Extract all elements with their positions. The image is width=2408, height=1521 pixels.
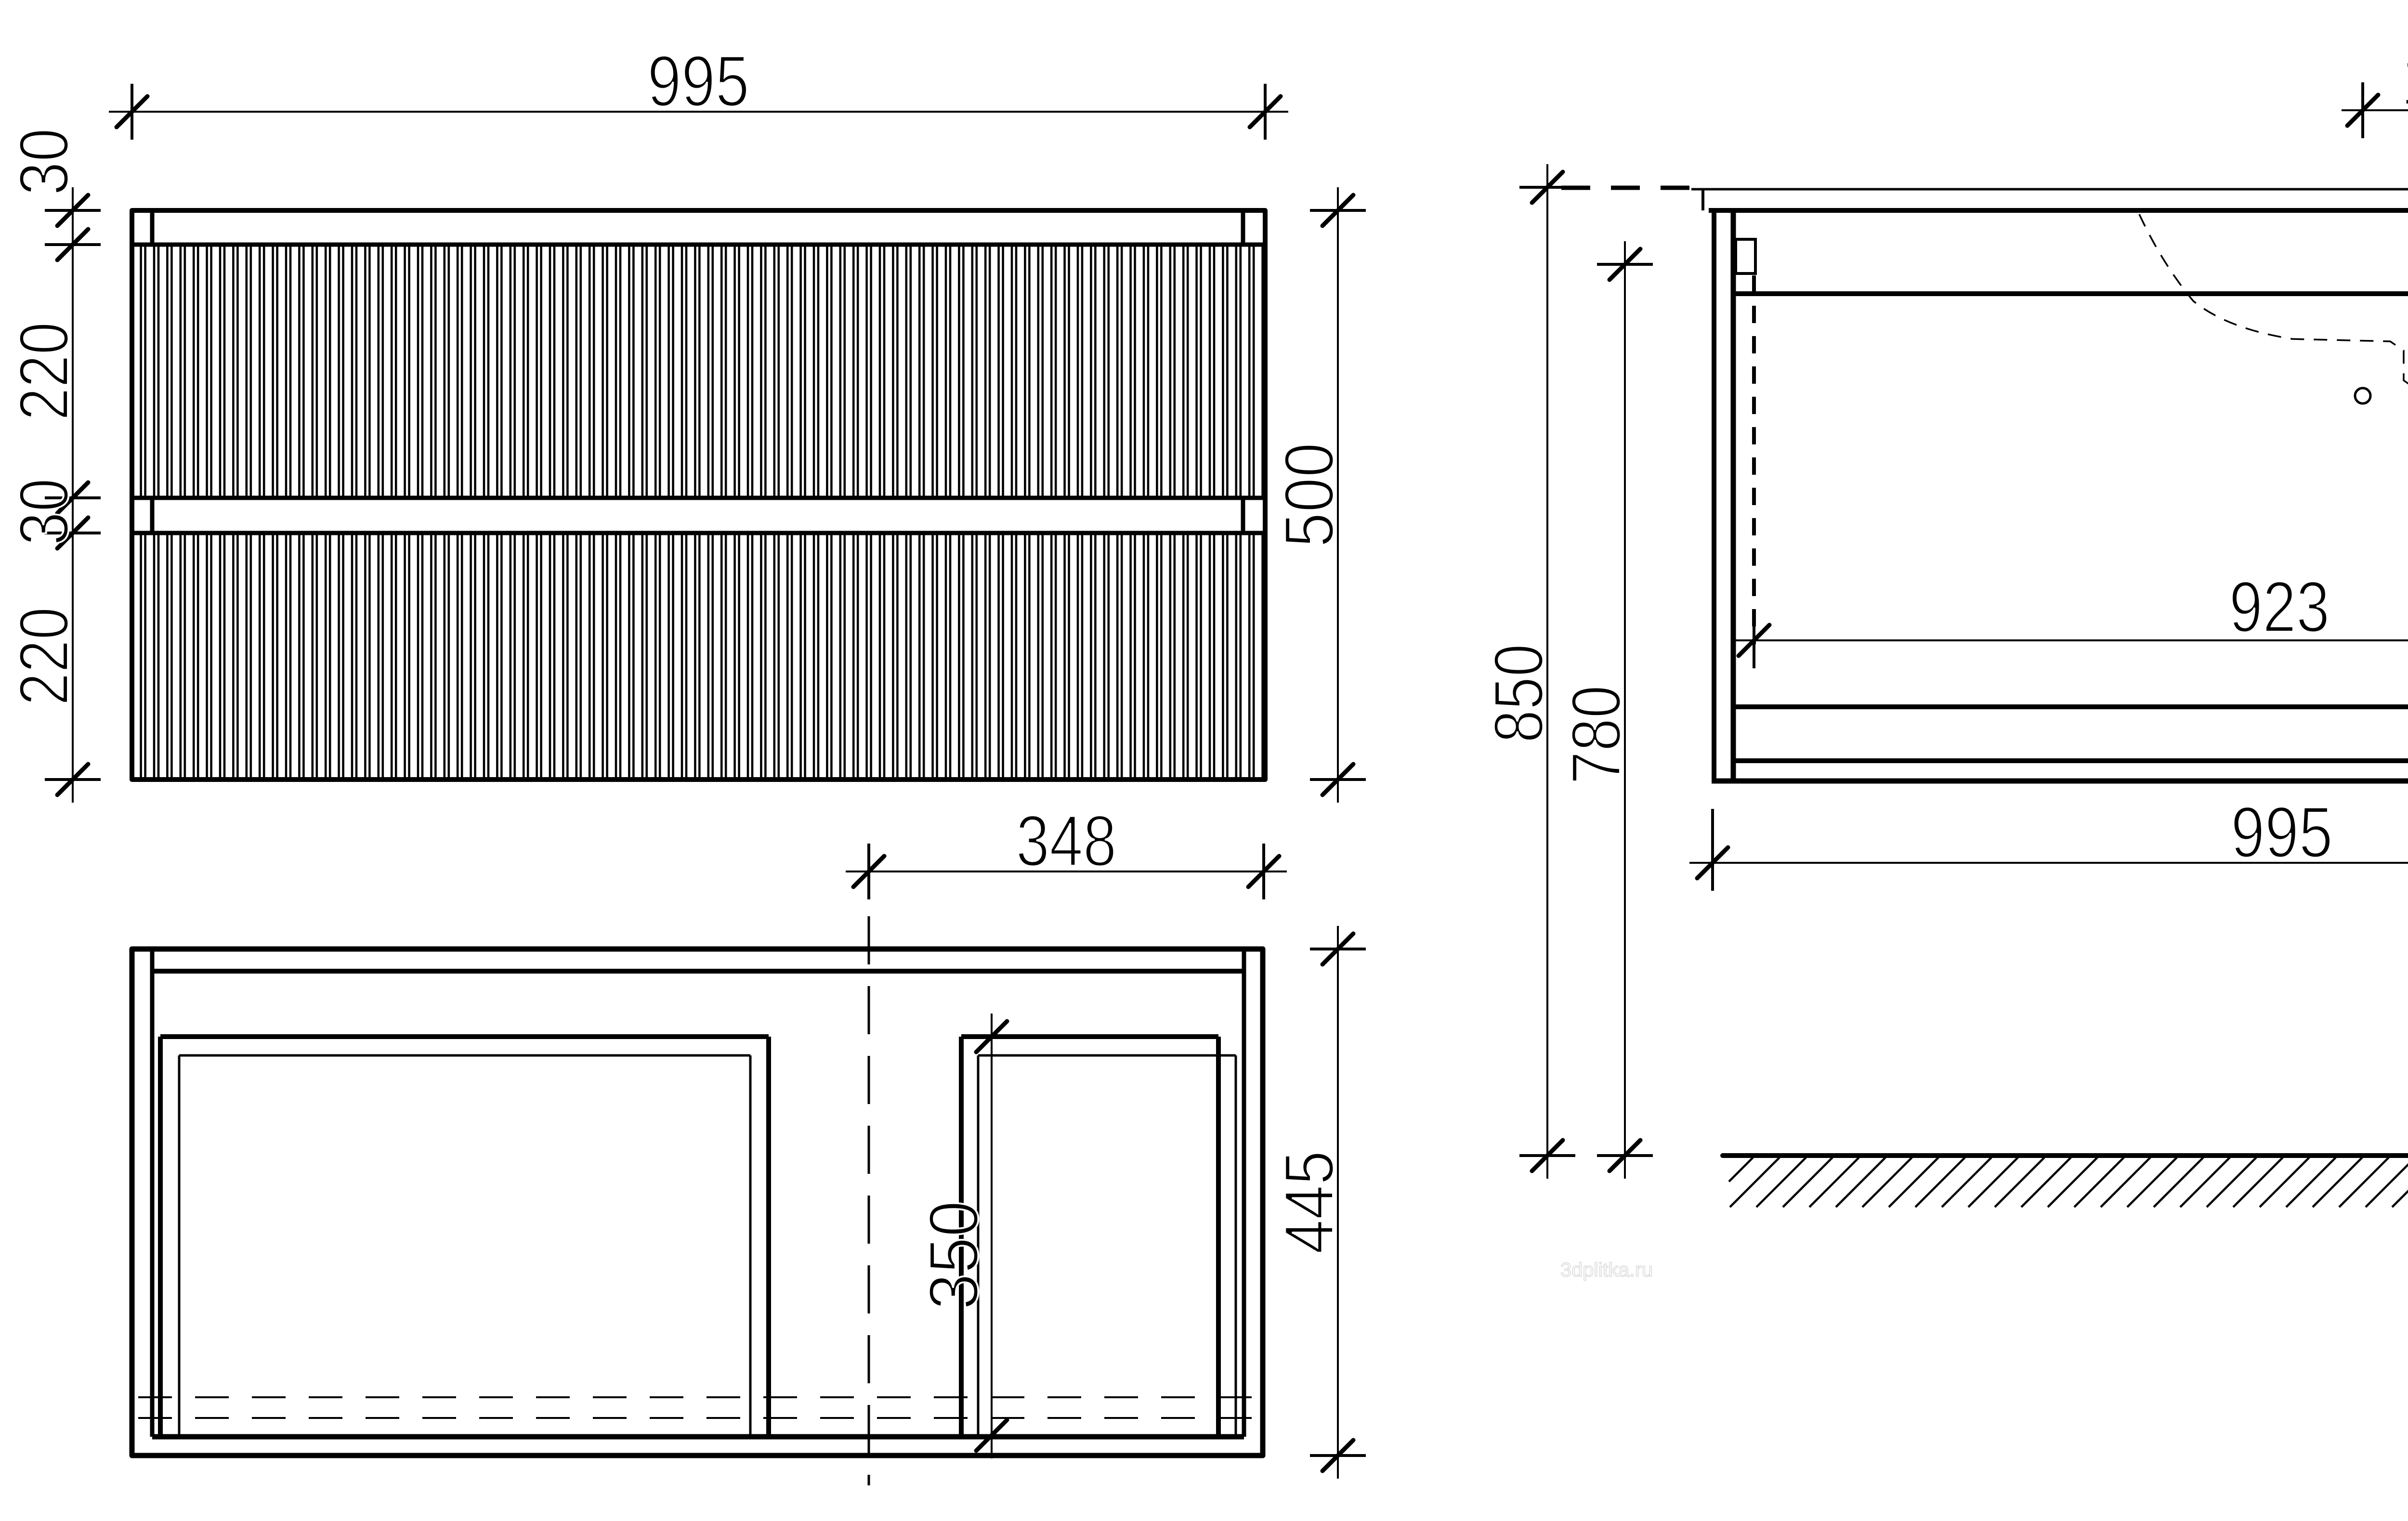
svg-text:500: 500 — [1270, 442, 1348, 547]
svg-text:220: 220 — [5, 607, 83, 706]
svg-text:220: 220 — [5, 322, 83, 421]
svg-text:445: 445 — [1270, 1151, 1348, 1254]
svg-text:150: 150 — [2401, 39, 2408, 120]
svg-text:780: 780 — [1557, 685, 1635, 784]
svg-text:3dplitka.ru: 3dplitka.ru — [1560, 1259, 1653, 1281]
svg-text:995: 995 — [2231, 792, 2333, 872]
svg-text:348: 348 — [1016, 800, 1117, 881]
svg-text:995: 995 — [647, 40, 749, 121]
svg-text:30: 30 — [5, 128, 83, 195]
svg-text:350: 350 — [915, 1201, 993, 1310]
svg-text:850: 850 — [1479, 644, 1557, 743]
svg-text:30: 30 — [5, 478, 83, 546]
svg-text:923: 923 — [2229, 566, 2330, 647]
